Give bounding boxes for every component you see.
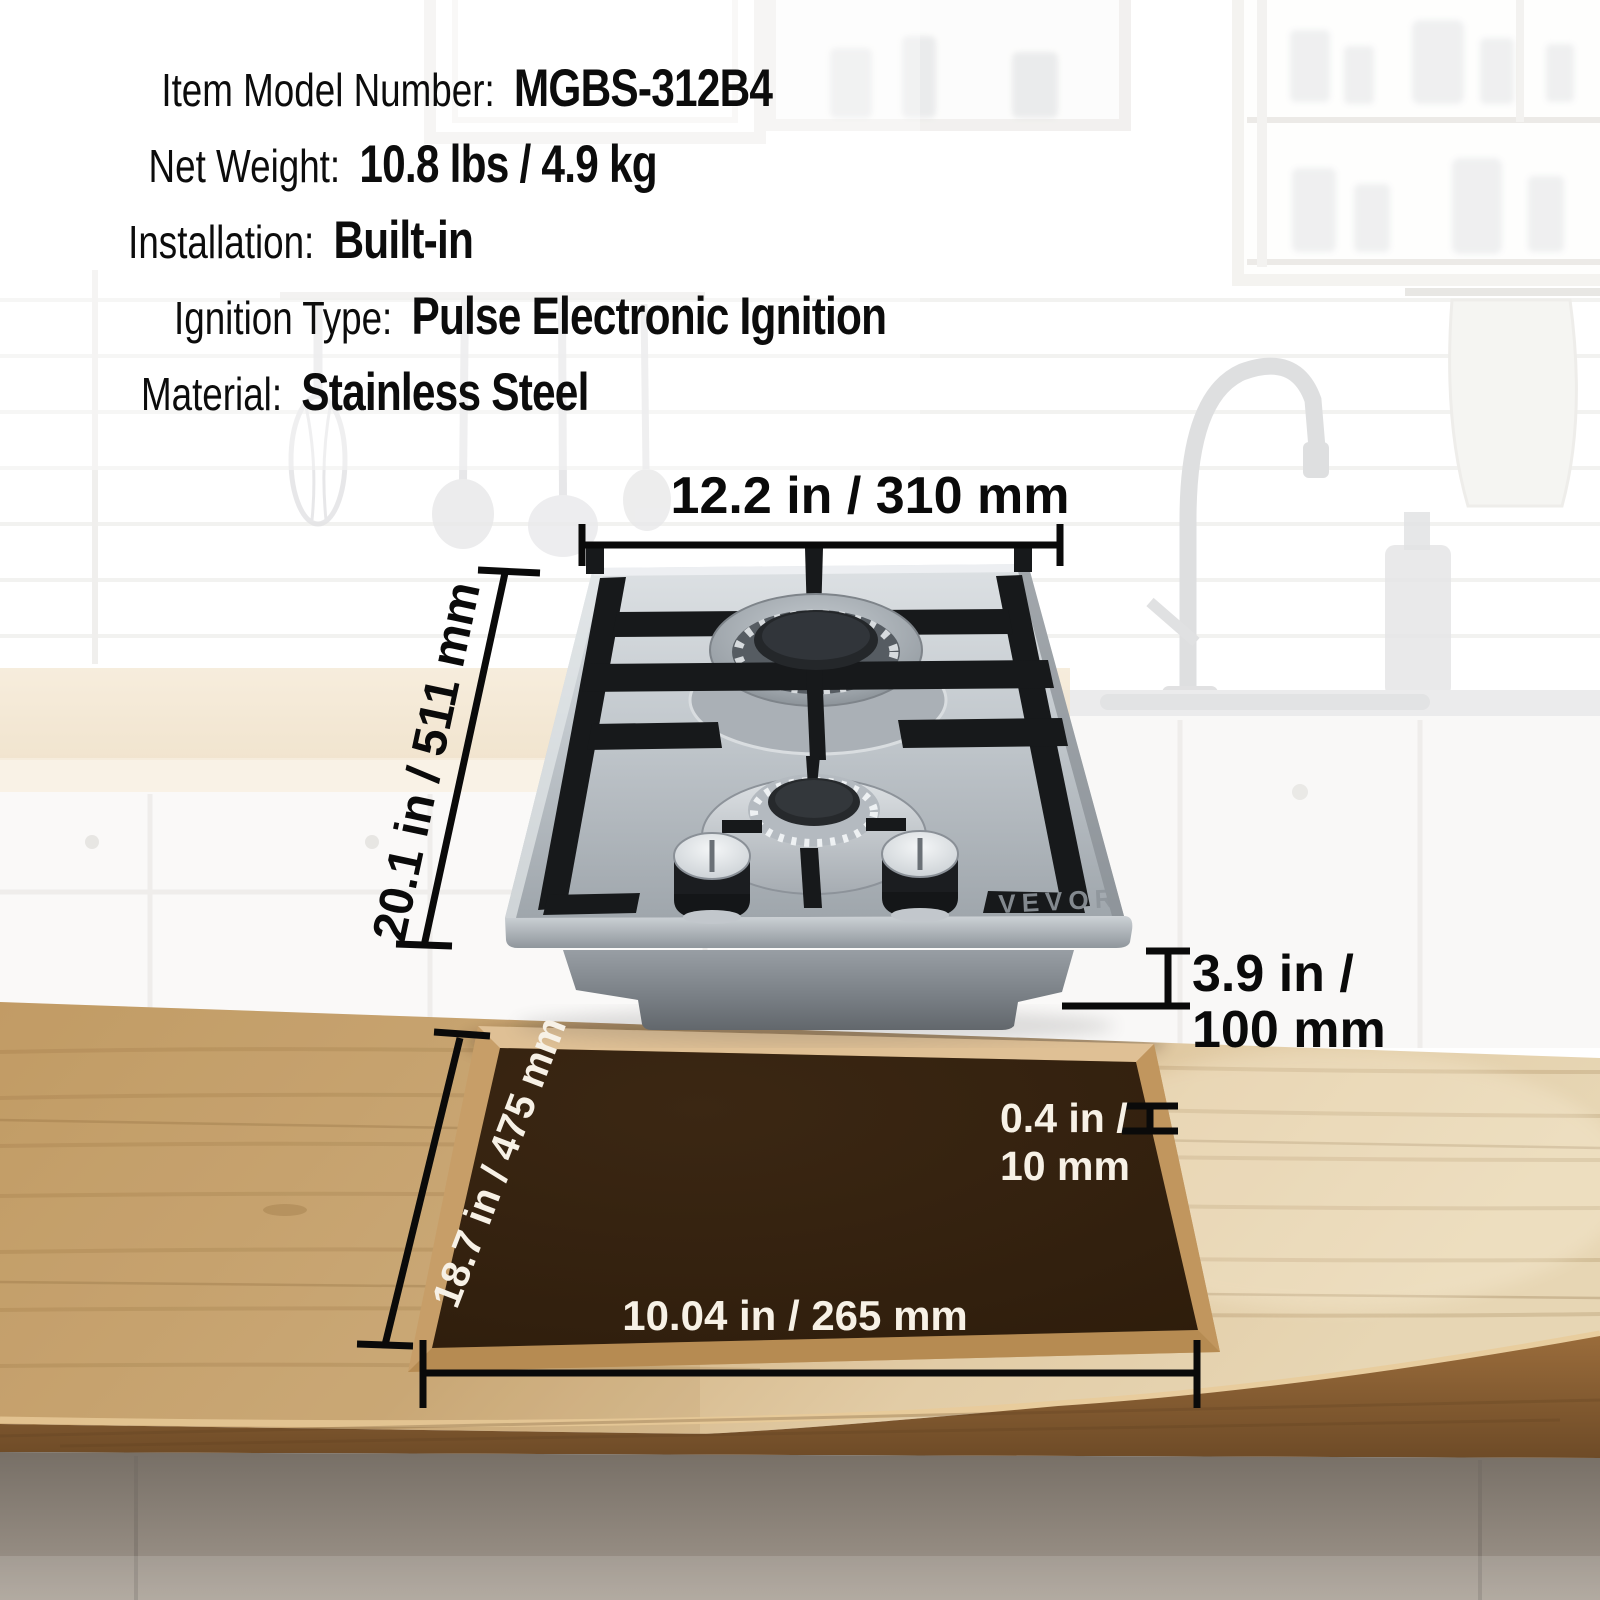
spec-value: Stainless Steel — [301, 362, 588, 423]
control-knob-left — [674, 833, 750, 924]
spec-label: Installation: — [128, 215, 314, 269]
dimension-height-line1: 3.9 in / — [1192, 946, 1386, 1002]
cooktop-photo: VEVOR — [505, 546, 1132, 1044]
control-knob-right — [882, 831, 958, 922]
brand-logo: VEVOR — [998, 883, 1120, 919]
spec-value: 10.8 lbs / 4.9 kg — [359, 134, 657, 195]
spec-label: Item Model Number: — [161, 63, 494, 117]
spec-row-weight: Net Weight: 10.8 lbs / 4.9 kg — [149, 134, 657, 195]
spec-label: Net Weight: — [149, 139, 341, 193]
dimension-cutout-width: 10.04 in / 265 mm — [595, 1292, 995, 1340]
dimension-height-line2: 100 mm — [1192, 1002, 1386, 1058]
spec-row-ignition: Ignition Type: Pulse Electronic Ignition — [174, 286, 886, 347]
spec-value: Pulse Electronic Ignition — [411, 286, 886, 347]
spec-row-model: Item Model Number: MGBS-312B4 — [161, 58, 772, 119]
dimension-thickness-line1: 0.4 in / — [1000, 1094, 1130, 1142]
spec-row-material: Material: Stainless Steel — [141, 362, 589, 423]
spec-label: Ignition Type: — [174, 291, 392, 345]
spec-label: Material: — [141, 367, 282, 421]
dimension-top-width: 12.2 in / 310 mm — [630, 466, 1110, 526]
spec-row-installation: Installation: Built-in — [128, 210, 473, 271]
spec-value: MGBS-312B4 — [514, 58, 772, 119]
cooktop-flange — [505, 916, 1132, 948]
product-spec-infographic: VEVOR — [0, 0, 1600, 1600]
dimension-thickness: 0.4 in / 10 mm — [1000, 1094, 1130, 1190]
dimension-thickness-line2: 10 mm — [1000, 1142, 1130, 1190]
spec-value: Built-in — [333, 210, 473, 271]
dimension-height: 3.9 in / 100 mm — [1192, 946, 1386, 1058]
toe-kick-highlight — [0, 1556, 1600, 1600]
